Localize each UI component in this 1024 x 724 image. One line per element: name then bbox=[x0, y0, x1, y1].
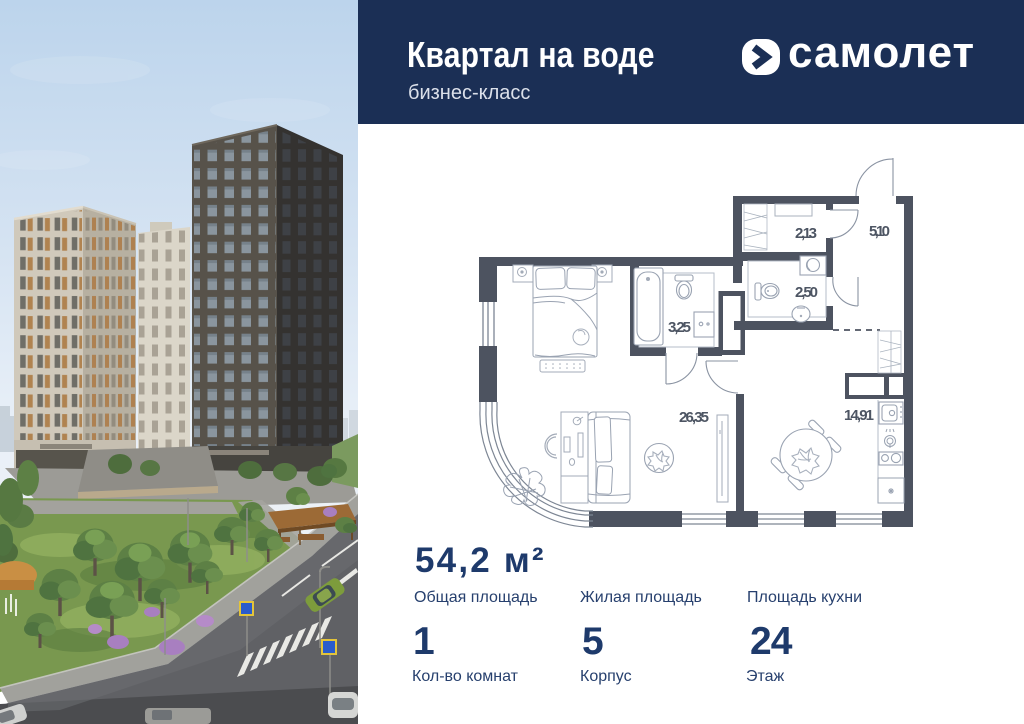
svg-text:3,25: 3,25 bbox=[668, 319, 691, 336]
svg-text:14,91: 14,91 bbox=[844, 407, 874, 424]
svg-text:2,13: 2,13 bbox=[795, 225, 817, 242]
svg-text:2,50: 2,50 bbox=[795, 284, 818, 301]
svg-text:5,10: 5,10 bbox=[869, 223, 890, 240]
svg-text:26,35: 26,35 bbox=[679, 409, 709, 426]
